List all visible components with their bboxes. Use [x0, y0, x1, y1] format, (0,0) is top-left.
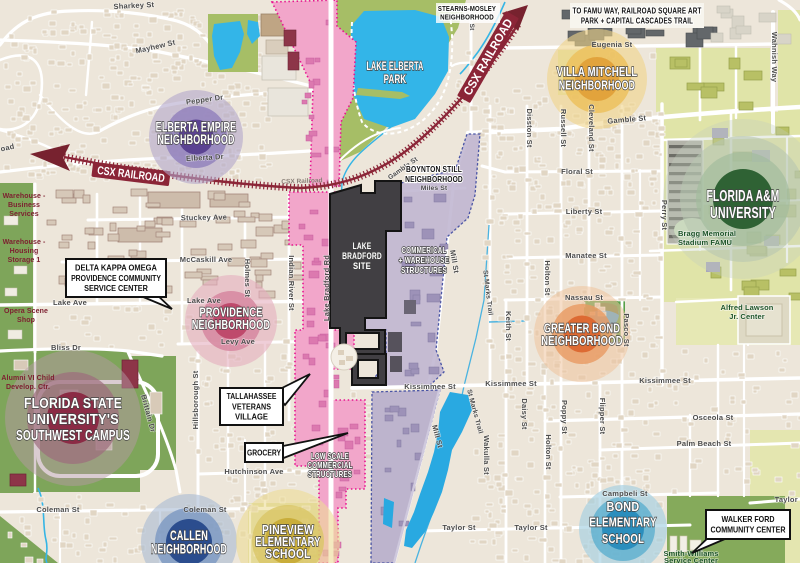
- svg-text:SOUTHWEST CAMPUS: SOUTHWEST CAMPUS: [16, 426, 130, 444]
- svg-text:LAKE: LAKE: [353, 241, 372, 251]
- svg-text:Taylor S: Taylor S: [775, 495, 800, 504]
- svg-text:ELEMENTARY: ELEMENTARY: [589, 516, 656, 530]
- svg-text:Osceola St: Osceola St: [693, 413, 734, 422]
- svg-text:Bragg Memorial: Bragg Memorial: [678, 229, 736, 238]
- svg-text:PARK: PARK: [384, 74, 407, 87]
- svg-text:SCHOOL: SCHOOL: [602, 533, 644, 547]
- svg-text:Perry St: Perry St: [660, 200, 669, 231]
- svg-text:VETERANS: VETERANS: [232, 402, 271, 411]
- svg-text:PARK + CAPITAL CASCADES TRAIL: PARK + CAPITAL CASCADES TRAIL: [581, 17, 694, 26]
- svg-text:Stadium FAMU: Stadium FAMU: [678, 238, 732, 247]
- svg-text:Flipper St: Flipper St: [598, 398, 607, 435]
- svg-text:Business: Business: [8, 202, 40, 209]
- svg-text:Floral St: Floral St: [561, 167, 593, 176]
- svg-text:Coleman St: Coleman St: [183, 505, 227, 514]
- svg-text:DELTA KAPPA OMEGA: DELTA KAPPA OMEGA: [75, 263, 157, 272]
- svg-text:SITE: SITE: [353, 260, 371, 271]
- svg-text:Russell St: Russell St: [559, 109, 568, 148]
- svg-text:Bliss Dr: Bliss Dr: [51, 343, 81, 352]
- svg-text:Indian River St: Indian River St: [287, 255, 296, 311]
- svg-text:COMMERCIAL: COMMERCIAL: [307, 461, 353, 470]
- svg-text:Housing: Housing: [10, 248, 39, 255]
- svg-text:Taylor St: Taylor St: [442, 523, 476, 532]
- svg-text:Storage 1: Storage 1: [8, 257, 41, 264]
- svg-text:Wakulla St: Wakulla St: [482, 435, 491, 475]
- svg-text:Opera Scene: Opera Scene: [4, 308, 48, 315]
- svg-text:COMMERICAL: COMMERICAL: [401, 245, 446, 255]
- svg-text:FLORIDA STATE: FLORIDA STATE: [24, 395, 122, 411]
- svg-text:STEARNS-MOSLEY: STEARNS-MOSLEY: [438, 5, 496, 13]
- svg-text:COMMUNITY CENTER: COMMUNITY CENTER: [711, 525, 786, 535]
- svg-text:Kissimmee St: Kissimmee St: [485, 379, 537, 388]
- svg-text:Warehouse -: Warehouse -: [3, 239, 46, 246]
- svg-text:NEIGHBORHOOD: NEIGHBORHOOD: [440, 14, 494, 22]
- svg-text:VILLA MITCHELL: VILLA MITCHELL: [557, 66, 638, 80]
- svg-text:Shop: Shop: [17, 317, 35, 324]
- svg-text:FLORIDA A&M: FLORIDA A&M: [706, 187, 779, 205]
- svg-text:Alumni VI Child: Alumni VI Child: [1, 375, 54, 382]
- svg-text:BOND: BOND: [607, 499, 640, 514]
- svg-text:Coleman St: Coleman St: [36, 505, 80, 514]
- svg-text:Alfred Lawson: Alfred Lawson: [721, 303, 774, 312]
- svg-text:Lake Ave: Lake Ave: [187, 296, 221, 305]
- svg-text:Nassau St: Nassau St: [565, 293, 603, 302]
- svg-text:Pasco St: Pasco St: [622, 313, 631, 347]
- svg-text:Levy Ave: Levy Ave: [221, 337, 255, 346]
- svg-text:Stuckey Ave: Stuckey Ave: [181, 213, 227, 223]
- svg-text:Hillsborough St: Hillsborough St: [191, 370, 200, 429]
- svg-text:Manatee St: Manatee St: [565, 251, 607, 260]
- svg-text:Holton St: Holton St: [543, 260, 552, 295]
- svg-text:Kissimmee St: Kissimmee St: [404, 382, 456, 391]
- svg-text:Liberty St: Liberty St: [566, 207, 603, 216]
- svg-text:TALLAHASSEE: TALLAHASSEE: [227, 392, 277, 402]
- svg-text:NEIGHBORHOOD: NEIGHBORHOOD: [559, 79, 635, 93]
- svg-text:NEIGHBORHOOD: NEIGHBORHOOD: [405, 174, 463, 184]
- svg-text:LOW SCALE: LOW SCALE: [311, 453, 349, 461]
- svg-text:WALKER FORD: WALKER FORD: [722, 515, 775, 525]
- svg-text:Warehouse -: Warehouse -: [3, 193, 46, 200]
- svg-text:UNIVERSITY: UNIVERSITY: [710, 204, 776, 222]
- svg-text:Services: Services: [9, 211, 39, 218]
- svg-text:Cleveland St: Cleveland St: [587, 104, 596, 152]
- svg-text:Hutchinson Ave: Hutchinson Ave: [224, 467, 283, 476]
- svg-text:Miles St: Miles St: [421, 185, 448, 192]
- svg-text:St: St: [468, 24, 475, 32]
- svg-text:Daisy St: Daisy St: [520, 398, 529, 429]
- svg-text:Taylor St: Taylor St: [514, 523, 548, 532]
- svg-text:STRUCTURES: STRUCTURES: [308, 470, 352, 479]
- svg-text:SERVICE CENTER: SERVICE CENTER: [84, 284, 148, 293]
- svg-text:CSX Railroad: CSX Railroad: [281, 177, 322, 185]
- svg-text:SCHOOL: SCHOOL: [265, 547, 310, 561]
- svg-text:Lake Bradford Rd: Lake Bradford Rd: [322, 255, 331, 321]
- svg-text:GROCERY: GROCERY: [247, 448, 281, 458]
- svg-text:Poppy St: Poppy St: [560, 400, 569, 434]
- svg-text:NEIGHBORHOOD: NEIGHBORHOOD: [192, 319, 270, 333]
- svg-text:Wahnish Way: Wahnish Way: [770, 32, 779, 83]
- svg-text:Keith St: Keith St: [504, 311, 513, 341]
- svg-text:Service Center: Service Center: [664, 556, 718, 563]
- svg-text:BOYNTON STILL: BOYNTON STILL: [406, 164, 462, 174]
- svg-text:NEIGHBORHOOD: NEIGHBORHOOD: [541, 335, 622, 349]
- svg-text:Palm Beach St: Palm Beach St: [677, 439, 732, 448]
- svg-text:PROVIDENCE COMMUNITY: PROVIDENCE COMMUNITY: [71, 273, 161, 283]
- svg-text:Disston St: Disston St: [525, 108, 534, 147]
- svg-text:VILLAGE: VILLAGE: [235, 412, 268, 421]
- svg-text:STRUCTURES: STRUCTURES: [401, 265, 447, 275]
- svg-text:Jr. Center: Jr. Center: [729, 312, 765, 321]
- svg-text:Develop. Ctr.: Develop. Ctr.: [6, 384, 50, 391]
- svg-text:Eugenia St: Eugenia St: [592, 40, 633, 49]
- svg-text:LAKE ELBERTA: LAKE ELBERTA: [366, 60, 423, 73]
- svg-text:Holmes St: Holmes St: [243, 259, 252, 298]
- svg-text:Campbeli St: Campbeli St: [602, 489, 648, 498]
- svg-text:TO FAMU WAY, RAILROAD SQUARE A: TO FAMU WAY, RAILROAD SQUARE ART: [573, 6, 702, 16]
- svg-text:Holton St: Holton St: [544, 434, 553, 469]
- svg-text:NEIGHBORHOOD: NEIGHBORHOOD: [157, 133, 234, 147]
- svg-text:UNIVERSITY'S: UNIVERSITY'S: [27, 410, 119, 427]
- svg-text:NEIGHBORHOOD: NEIGHBORHOOD: [151, 542, 227, 558]
- svg-text:McCaskill Ave: McCaskill Ave: [180, 255, 233, 264]
- svg-text:+ WAREHOUSE: + WAREHOUSE: [399, 255, 449, 265]
- svg-text:Kissimmee St: Kissimmee St: [639, 376, 691, 385]
- svg-text:Lake Ave: Lake Ave: [53, 298, 87, 307]
